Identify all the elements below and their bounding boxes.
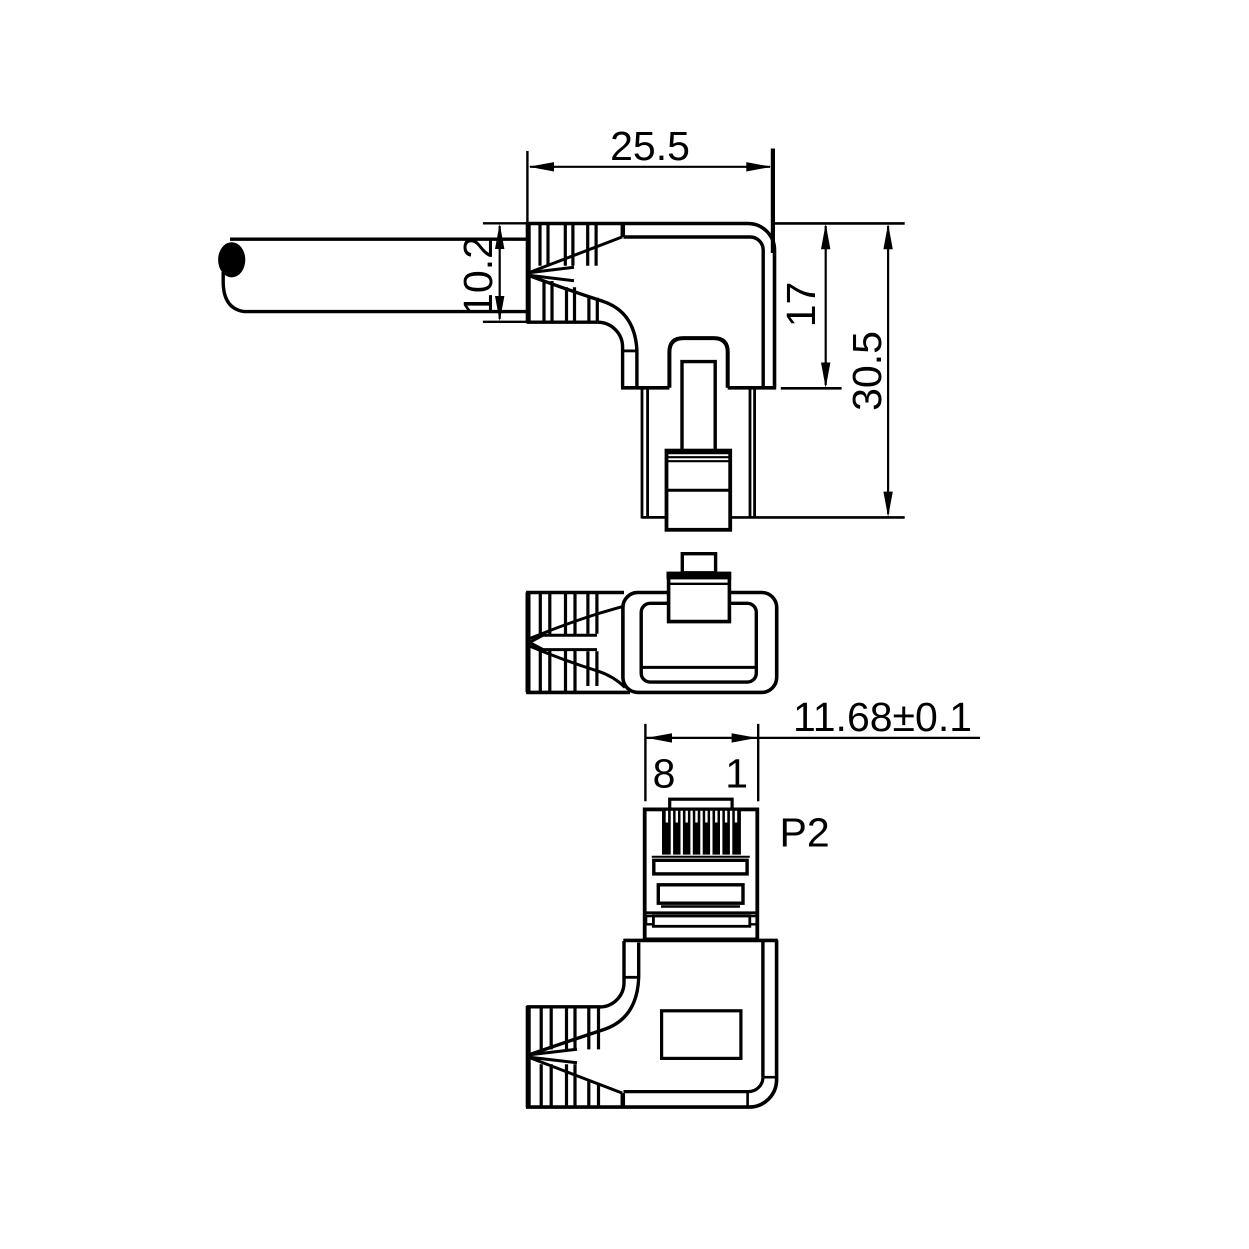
svg-text:17: 17 xyxy=(778,282,824,328)
svg-text:10.2: 10.2 xyxy=(455,236,501,316)
svg-text:25.5: 25.5 xyxy=(610,123,690,169)
svg-text:P2: P2 xyxy=(780,810,830,856)
svg-text:1: 1 xyxy=(725,751,748,797)
svg-text:8: 8 xyxy=(653,751,676,797)
svg-text:30.5: 30.5 xyxy=(844,331,890,411)
svg-text:11.68±0.1: 11.68±0.1 xyxy=(793,694,972,740)
